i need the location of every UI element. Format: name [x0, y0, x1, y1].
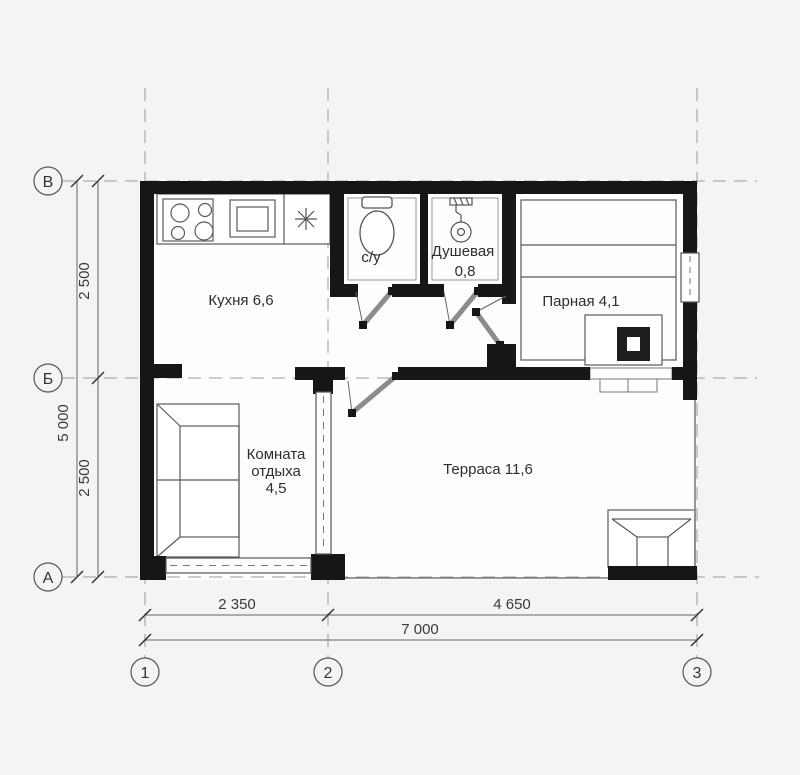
wall-segment: [311, 554, 345, 580]
dim-label-horizontal-right: 4 650: [493, 596, 531, 613]
wall-segment: [140, 556, 166, 580]
sauna-stove: [585, 315, 662, 365]
dim-label-horizontal-left: 2 350: [218, 596, 256, 613]
room-label-shower-area: 0,8: [455, 263, 476, 280]
wall-segment: [683, 181, 697, 253]
axis-label-row-top: В: [43, 174, 54, 191]
dim-label-vertical-total: 5 000: [55, 404, 72, 442]
wall-segment: [683, 302, 697, 400]
wall-segment: [420, 194, 428, 284]
room-label-rest-2: отдыха: [251, 463, 301, 480]
axis-label-col-mid: 2: [324, 665, 333, 682]
dim-label-vertical-upper: 2 500: [76, 262, 93, 300]
toilet: [360, 197, 394, 255]
wall-segment: [502, 284, 516, 304]
wall-segment: [330, 194, 344, 284]
sauna-stove-core: [627, 337, 640, 351]
axis-label-row-mid: Б: [43, 371, 54, 388]
axis-label-row-bottom: А: [43, 570, 54, 587]
room-label-kitchen: Кухня 6,6: [208, 292, 273, 309]
wall-segment: [428, 284, 444, 297]
fridge-snowflake-icon: [295, 208, 317, 230]
room-label-shower: Душевая: [432, 243, 495, 260]
floor-plan-canvas: 5 000 2 500 2 500 2 350 4 650 7 000 В Б …: [0, 0, 800, 775]
toilet-tank: [362, 197, 392, 208]
wall-segment: [608, 566, 697, 580]
wall-segment: [502, 194, 516, 284]
wall-segment: [516, 367, 590, 380]
wall-segment: [672, 367, 697, 380]
sofa: [157, 404, 239, 557]
wall-segment: [140, 181, 697, 194]
room-label-terrace: Терраса 11,6: [443, 461, 533, 478]
wall-segment: [154, 364, 182, 378]
dim-label-vertical-lower: 2 500: [76, 459, 93, 497]
wall-segment: [392, 284, 428, 297]
room-label-steam: Парная 4,1: [542, 293, 619, 310]
wall-segment: [330, 284, 358, 297]
axis-label-col-right: 3: [693, 665, 702, 682]
dim-label-horizontal-total: 7 000: [401, 621, 439, 638]
room-label-rest-1: Комната: [247, 446, 306, 463]
room-label-rest-3: 4,5: [266, 480, 287, 497]
floor-plan-page: 5 000 2 500 2 500 2 350 4 650 7 000 В Б …: [0, 0, 800, 775]
axis-label-col-left: 1: [141, 665, 150, 682]
wall-segment: [398, 367, 502, 380]
kitchen-stove: [163, 199, 213, 241]
room-label-wc: с/у: [361, 249, 381, 266]
wall-segment: [140, 181, 154, 580]
armchair: [608, 510, 695, 567]
